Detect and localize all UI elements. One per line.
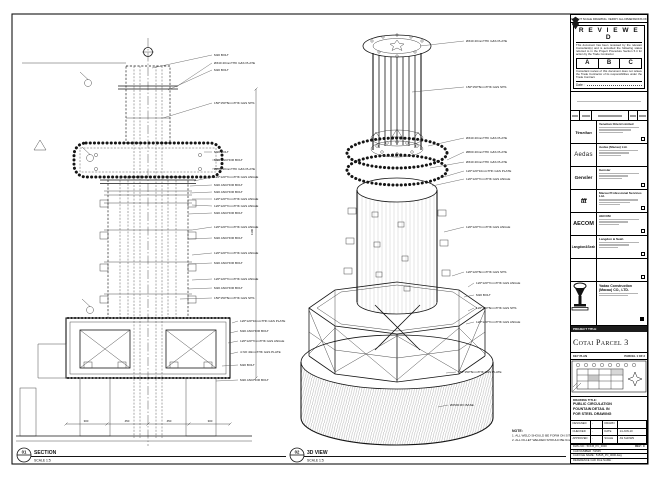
consultant-row: Langdon&Seah Langdon & Seah bbox=[571, 236, 647, 259]
cad-number: CAD NUMBER : 51545 bbox=[573, 450, 601, 454]
view-scale: SCALE 1:5 bbox=[34, 459, 51, 463]
consultant-name: Venetian Orient Limited bbox=[599, 123, 645, 126]
signoff-cell: DATE bbox=[603, 429, 618, 437]
project-title-row: Cotai Parcel 3 bbox=[571, 332, 647, 353]
note-line: 1. ALL WELD SHOULD BE FORM ON SITE. bbox=[512, 434, 573, 438]
callout-label: 120*120*7mmTHK G&S ANGLE bbox=[214, 225, 258, 229]
callout-label: 120*120*8mmTHK G&S SHS bbox=[476, 306, 516, 310]
signoff-cell: DESIGNED bbox=[571, 421, 591, 429]
project-title: Cotai Parcel 3 bbox=[573, 338, 629, 347]
date-fill-line bbox=[587, 83, 642, 86]
key-plan-block: KEY PLAN PARCEL 1 OF 3 bbox=[571, 353, 647, 397]
drawing-canvas: 300 450 450 300 1100 M20 BOLT Ø3 bbox=[0, 0, 650, 488]
callout-label: 120*120*7mmTHK G&S ANGLE bbox=[466, 177, 510, 181]
callout-label: Ø340 40mmTHK G&S PLATE bbox=[466, 160, 507, 164]
signoff-cell: SCALE bbox=[603, 436, 618, 444]
dim-label: 450 bbox=[125, 419, 130, 423]
signature-area bbox=[571, 92, 647, 111]
callout-label: Ø800 40mmTHK G&S PLATE bbox=[214, 167, 255, 171]
address-line-bar bbox=[599, 155, 621, 156]
note-title: NOTE: bbox=[512, 429, 523, 433]
stamp-date-row: Date : bbox=[576, 81, 642, 87]
address-line-bar bbox=[599, 129, 631, 130]
signoff-cell: - bbox=[591, 429, 603, 437]
empty-logo-cell bbox=[571, 259, 597, 281]
key-plan-parcel: PARCEL 1 OF 3 bbox=[624, 354, 645, 358]
ref-cad-file-name: REFERENCE CAD FILE NAME : bbox=[573, 459, 612, 463]
section-callouts: M20 BOLT Ø340 40mmTHK G&S PLATE M20 BOLT… bbox=[214, 53, 285, 382]
consultant-name: Langdon & Seah bbox=[599, 238, 645, 241]
callout-label: 120*120*7mmTHK G&S ANGLE bbox=[214, 204, 258, 208]
dim-label: 300 bbox=[84, 419, 89, 423]
section-dimensions: 300 450 450 300 1100 bbox=[65, 88, 258, 426]
stamp-square bbox=[640, 317, 645, 322]
status-cell-c: C bbox=[620, 59, 641, 68]
callout-label: Ø340 40mmTHK G&S PLATE bbox=[466, 39, 507, 43]
callout-label: 4 NO 40mmTHK G&S PLATE bbox=[240, 350, 281, 354]
section-upper-column bbox=[22, 63, 178, 438]
consultant-row: Aedas Aedas (Macau) Ltd. bbox=[571, 144, 647, 167]
title-block: DO NOT SCALE DRAWING. VERIFY ALL DIMENSI… bbox=[570, 14, 648, 464]
consultant-row: Venetian Venetian Orient Limited bbox=[571, 121, 647, 144]
approval-checkbox bbox=[641, 137, 645, 141]
signoff-cell: AS SHOWN bbox=[618, 436, 647, 444]
callout-label: Ø340 40mmTHK G&S PLATE bbox=[466, 136, 507, 140]
weld-symbol-icon bbox=[34, 72, 94, 314]
signoff-cell: - bbox=[591, 436, 603, 444]
revision-table-header bbox=[571, 111, 647, 121]
langdon-seah-logo: Langdon&Seah bbox=[571, 236, 597, 258]
callout-label: 150*150*8mmTHK G&S SHS bbox=[214, 101, 254, 105]
address-line-bar bbox=[599, 293, 638, 294]
callout-label: 120*120*7mmTHK G&S ANGLE bbox=[476, 320, 520, 324]
callout-label: 120*120*7mmTHK G&S ANGLE bbox=[214, 277, 258, 281]
drawing-title-block: DRAWING TITLE: PUBLIC CIRCULATION FOUNTA… bbox=[571, 397, 647, 421]
callout-label: Ø2500 RC BASE bbox=[450, 403, 474, 407]
callout-label: 150*150*8mmTHK G&S SHS bbox=[214, 296, 254, 300]
reviewed-stamp: R E V I E W E D This document has been r… bbox=[571, 23, 647, 92]
callout-label: M20 ANCHOR BOLT bbox=[214, 158, 243, 162]
approval-checkbox bbox=[641, 206, 645, 210]
callout-label: M20 BOLT bbox=[476, 293, 491, 297]
signoff-cell: 14-JUN-10 bbox=[618, 429, 647, 437]
consultant-row: ttt Macau Professional Services Ltd. bbox=[571, 190, 647, 213]
callout-label: Ø800 40mmTHK G&S PLATE bbox=[466, 150, 507, 154]
callout-label: M20 BOLT bbox=[214, 150, 229, 154]
3d-view: Ø340 40mmTHK G&S PLATE 150*150*8mmTHK G&… bbox=[290, 34, 580, 463]
drawing-title-line: FOR STEEL DRAWING bbox=[573, 412, 645, 417]
callout-label: 120*120*7mmTHK G&S ANGLE bbox=[476, 281, 520, 285]
mid-cylinder bbox=[344, 178, 450, 314]
status-cell-b: B bbox=[599, 59, 621, 68]
tube-cluster bbox=[371, 53, 423, 150]
address-line-bar bbox=[599, 173, 639, 174]
dim-label: 450 bbox=[167, 419, 172, 423]
address-line-bar bbox=[599, 202, 630, 203]
callout-label: M20 ANCHOR BOLT bbox=[214, 286, 243, 290]
callout-label: M20 BOLT bbox=[214, 53, 229, 57]
date-label: Date : bbox=[576, 83, 585, 87]
address-line-bar bbox=[599, 219, 639, 220]
callout-label: 120*120*7mmTHK G&S ANGLE bbox=[214, 251, 258, 255]
key-plan-label: KEY PLAN bbox=[573, 354, 587, 358]
signoff-cell: DRAWN bbox=[603, 421, 618, 429]
address-line-bar bbox=[599, 247, 618, 248]
signoff-table: DESIGNED - DRAWN CHECKED - DATE 14-JUN-1… bbox=[571, 421, 647, 445]
section-title: 01 SECTION SCALE 1:5 bbox=[17, 448, 286, 463]
callout-label: 150*150*8mmTHK G&S SHS bbox=[466, 85, 506, 89]
consultant-row-empty bbox=[571, 259, 647, 282]
contractor-logo-icon bbox=[571, 282, 597, 325]
address-line-bar bbox=[599, 127, 639, 128]
callout-label: M20 ANCHOR BOLT bbox=[214, 183, 243, 187]
callout-label: M20 ANCHOR BOLT bbox=[240, 378, 269, 382]
stamp-title: R E V I E W E D bbox=[576, 27, 642, 43]
signoff-cell: - bbox=[591, 421, 603, 429]
callout-label: M20 BOLT bbox=[214, 68, 229, 72]
address-line-bar bbox=[599, 221, 628, 222]
address-line-bar bbox=[599, 295, 628, 296]
callout-label: M20 BOLT bbox=[240, 363, 255, 367]
key-plan-map bbox=[571, 360, 647, 393]
drawing-reference-rows: DWG NO : 51545_PC_0000 REV : C CAD NUMBE… bbox=[571, 445, 647, 463]
dim-label: 300 bbox=[208, 419, 213, 423]
callout-label: 150*150*8mmTHK G&S PLATE bbox=[458, 370, 502, 374]
signoff-cell: APPROVED bbox=[571, 436, 591, 444]
approval-checkbox bbox=[641, 229, 645, 233]
address-line-bar bbox=[599, 199, 638, 200]
callout-label: 120*120*7mmTHK G&S ANGLE bbox=[466, 225, 510, 229]
view-title: SECTION bbox=[34, 450, 57, 456]
address-line-bar bbox=[599, 132, 623, 133]
signoff-cell bbox=[618, 421, 647, 429]
view-scale: SCALE 1:5 bbox=[307, 459, 324, 463]
address-line-bar bbox=[599, 224, 619, 225]
dim-label: 1100 bbox=[250, 229, 254, 236]
signoff-cell: CHECKED bbox=[571, 429, 591, 437]
callout-label: M20 ANCHOR BOLT bbox=[214, 261, 243, 265]
address-line-bar bbox=[599, 152, 629, 153]
callout-label: M20 ANCHOR BOLT bbox=[214, 236, 243, 240]
gensler-logo: Gensler bbox=[571, 167, 597, 189]
status-cell-a: A bbox=[577, 59, 599, 68]
section-view: 300 450 450 300 1100 M20 BOLT Ø3 bbox=[16, 38, 286, 463]
stamp-paragraph: Consultant review of this document does … bbox=[576, 70, 642, 80]
contractor-name: (Macau) CO., LTD. bbox=[599, 288, 645, 292]
ornament-icon bbox=[571, 15, 580, 31]
callout-label: M20 ANCHOR BOLT bbox=[214, 211, 243, 215]
stamp-paragraph: This document has been reviewed by the r… bbox=[576, 44, 642, 57]
aecom-logo: AECOM bbox=[571, 213, 597, 235]
edge-note: DO NOT SCALE DRAWING. VERIFY ALL DIMENSI… bbox=[571, 15, 647, 23]
callout-label: 120*120*8mmTHK G&S SHS bbox=[466, 270, 506, 274]
contractor-row: Yadao Construction (Macau) CO., LTD. bbox=[571, 282, 647, 326]
address-line-bar bbox=[599, 242, 639, 243]
callout-label: 120*120*7mmTHK G&S ANGLE bbox=[214, 175, 258, 179]
view-bubble-number: 01 bbox=[22, 450, 27, 455]
approval-checkbox bbox=[641, 275, 645, 279]
address-line-bar bbox=[599, 204, 620, 205]
callout-label: 120*120*10mmTHK G&S PLATE bbox=[240, 319, 285, 323]
view-bubble-number: 02 bbox=[295, 450, 300, 455]
venetian-logo: Venetian bbox=[571, 121, 597, 143]
approval-checkbox bbox=[641, 183, 645, 187]
cad-file-name: CAD FILE NAME : 51545_PC_0000.dwg bbox=[573, 454, 622, 458]
address-line-bar bbox=[599, 244, 629, 245]
collar-clover-plate bbox=[347, 129, 447, 185]
callout-label: M20 ANCHOR BOLT bbox=[214, 190, 243, 194]
consultant-name: Gensler bbox=[599, 169, 645, 172]
consultant-row: AECOM AECOM bbox=[571, 213, 647, 236]
consultant-row: Gensler Gensler bbox=[571, 167, 647, 190]
view-title: 3D VIEW bbox=[307, 450, 328, 456]
callout-label: Ø340 40mmTHK G&S PLATE bbox=[214, 61, 255, 65]
callout-label: 120*120*10mmTHK G&S PLATE bbox=[466, 169, 511, 173]
consultant-name: Macau Professional Services Ltd. bbox=[599, 192, 645, 199]
drawing-sheet: 300 450 450 300 1100 M20 BOLT Ø3 bbox=[0, 0, 650, 488]
callout-label: M20 ANCHOR BOLT bbox=[240, 329, 269, 333]
approval-checkbox bbox=[641, 252, 645, 256]
consultant-name: Aedas (Macau) Ltd. bbox=[599, 146, 645, 149]
3d-view-title: 02 3D VIEW SCALE 1:5 bbox=[290, 448, 566, 463]
dwg-no: DWG NO : 51545_PC_0000 bbox=[573, 445, 607, 449]
callout-label: 120*120*7mmTHK G&S ANGLE bbox=[214, 197, 258, 201]
rev-badge: REV : C bbox=[635, 445, 645, 449]
ttt-logo: ttt bbox=[571, 190, 597, 212]
consultant-name: AECOM bbox=[599, 215, 645, 218]
status-options: A B C bbox=[576, 58, 642, 69]
callout-label: 120*120*7mmTHK G&S ANGLE bbox=[240, 339, 284, 343]
address-line-bar bbox=[599, 150, 638, 151]
address-line-bar bbox=[599, 178, 622, 179]
aedas-logo: Aedas bbox=[571, 144, 597, 166]
address-line-bar bbox=[599, 175, 628, 176]
